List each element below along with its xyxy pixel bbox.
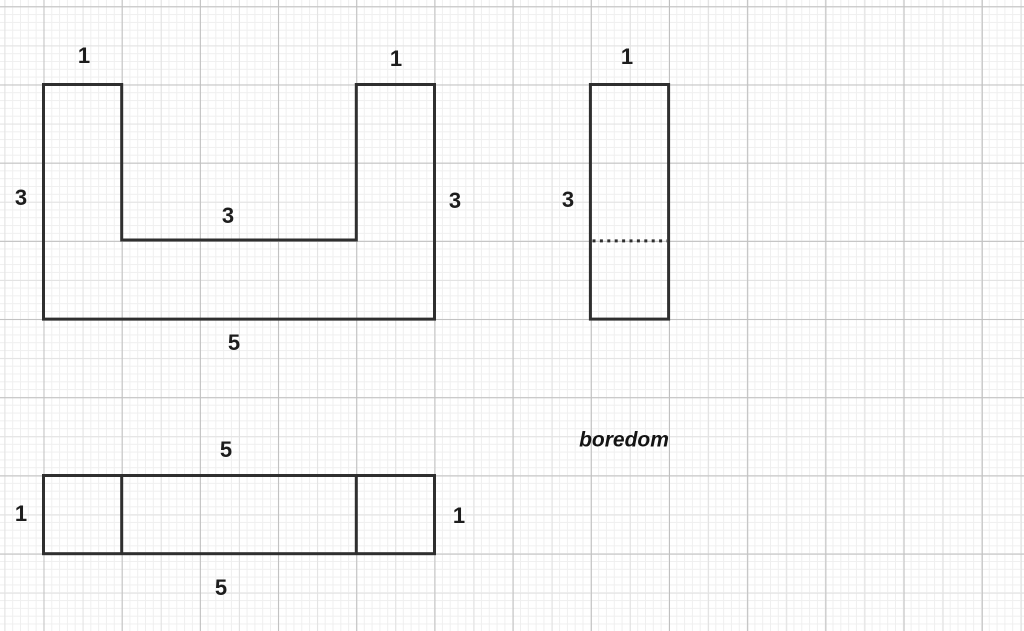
dim-front-top-left[interactable]: 1 [78,45,90,67]
drawing-canvas[interactable]: 1 1 3 3 3 5 1 3 5 1 1 5 boredom [0,0,1024,631]
dim-top-top[interactable]: 5 [220,439,232,461]
front-view-u-shape[interactable] [44,85,435,320]
side-view-rect[interactable] [590,85,668,320]
top-view-rect[interactable] [44,476,435,554]
dim-front-right[interactable]: 3 [449,190,461,212]
dim-top-right[interactable]: 1 [453,505,465,527]
annotation-text[interactable]: boredom [579,430,669,451]
dim-front-top-right[interactable]: 1 [390,48,402,70]
dim-side-left[interactable]: 3 [562,189,574,211]
dim-front-inner[interactable]: 3 [222,205,234,227]
shapes-layer [0,0,1024,631]
dim-side-top[interactable]: 1 [621,46,633,68]
dim-top-bottom[interactable]: 5 [215,577,227,599]
dim-front-bottom[interactable]: 5 [228,332,240,354]
dim-front-left[interactable]: 3 [15,187,27,209]
dim-top-left[interactable]: 1 [15,503,27,525]
